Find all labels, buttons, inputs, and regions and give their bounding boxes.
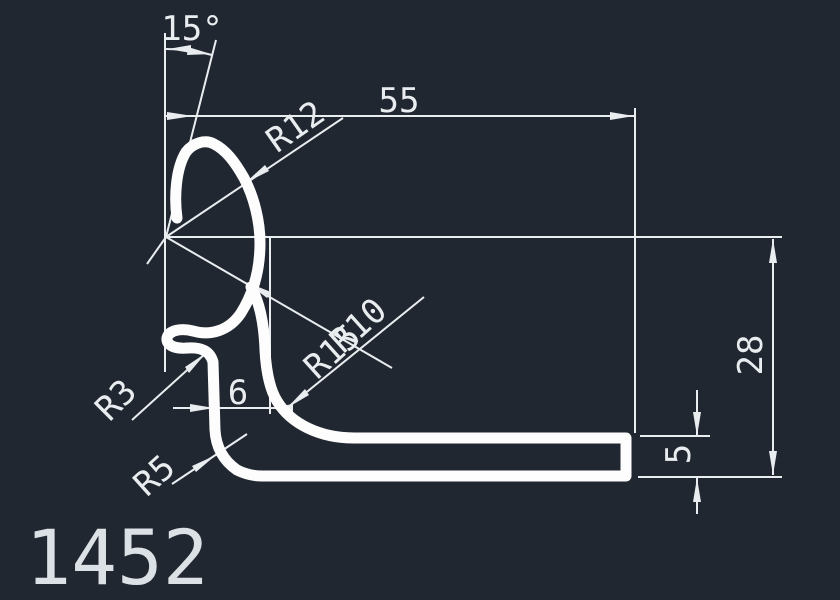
cad-viewport: 15° 55 28 5 6 R12 R15 R10 R3 R5 1452 xyxy=(0,0,840,600)
label-thickness-5: 5 xyxy=(659,444,699,464)
part-number-text[interactable]: 1452 xyxy=(25,513,208,600)
cad-canvas[interactable]: 15° 55 28 5 6 R12 R15 R10 R3 R5 1452 xyxy=(0,0,840,600)
label-height-28: 28 xyxy=(731,335,771,376)
label-offset-6: 6 xyxy=(228,373,248,413)
label-angle-15: 15° xyxy=(161,9,222,49)
label-width-55: 55 xyxy=(379,81,420,121)
